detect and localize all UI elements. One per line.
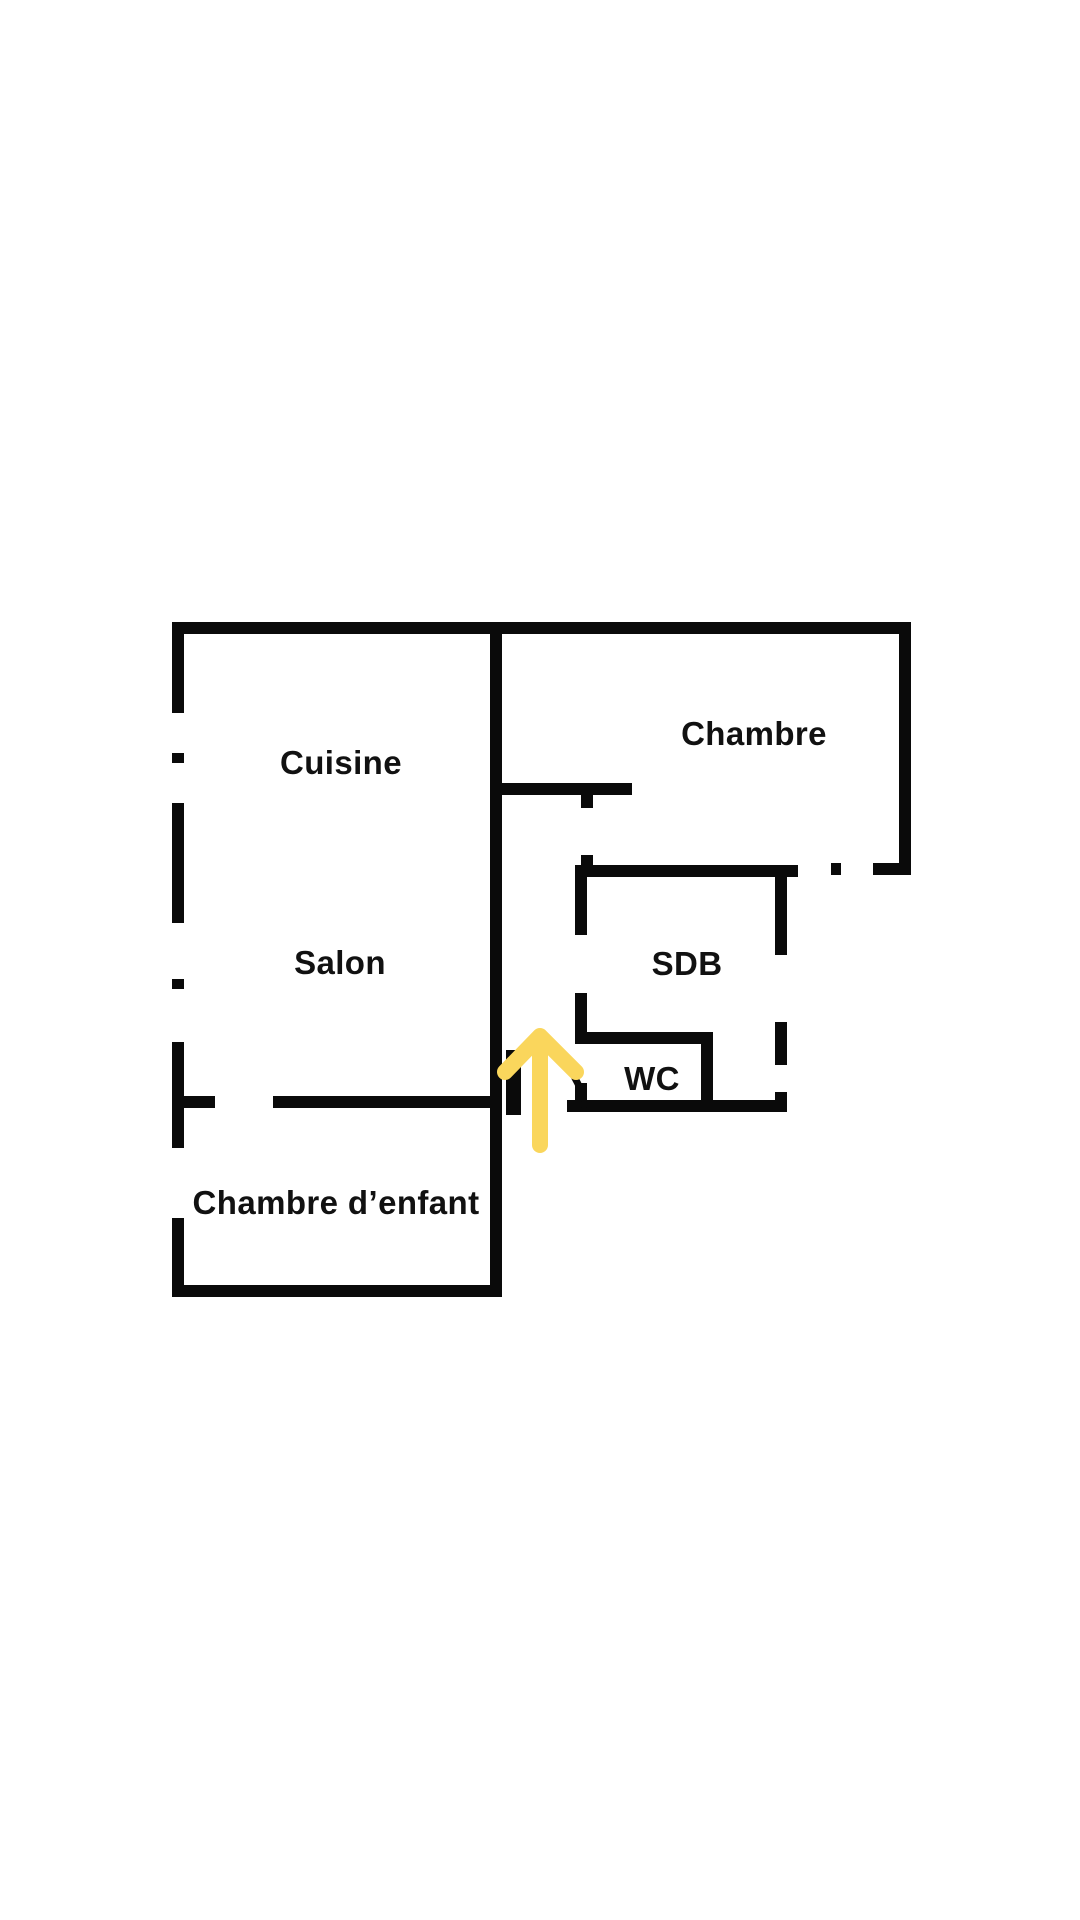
exterior-wall-left-segment (172, 803, 184, 923)
wc-wall-top (575, 1032, 713, 1044)
divider-wall-stub (183, 1096, 215, 1108)
chambre-lower-wall (502, 783, 632, 795)
window-dash (172, 979, 184, 989)
floorplan-canvas: Cuisine Chambre Salon SDB WC Chambre d’e… (0, 0, 1080, 1920)
exterior-wall-bottom (172, 1285, 502, 1297)
floorplan-drawing (0, 0, 1080, 1920)
sdb-wc-wall-bottom (567, 1100, 787, 1112)
sdb-wall-right-segment (775, 877, 787, 955)
divider-wall (273, 1096, 490, 1108)
interior-walls (183, 622, 798, 1297)
sdb-wall-left-segment (575, 877, 587, 935)
door-frame-tick (581, 795, 593, 808)
exterior-wall-top (172, 622, 911, 634)
exterior-wall-step (873, 863, 911, 875)
exterior-wall-left-segment (172, 1042, 184, 1148)
window-dash (172, 753, 184, 763)
door-pier-dash (831, 863, 841, 875)
exterior-wall-right (899, 622, 911, 875)
exterior-wall-left-segment (172, 622, 184, 713)
central-wall (490, 622, 502, 1297)
sdb-wall-top (575, 865, 798, 877)
sdb-wall-right-segment (775, 1022, 787, 1065)
exterior-walls (172, 622, 911, 1297)
